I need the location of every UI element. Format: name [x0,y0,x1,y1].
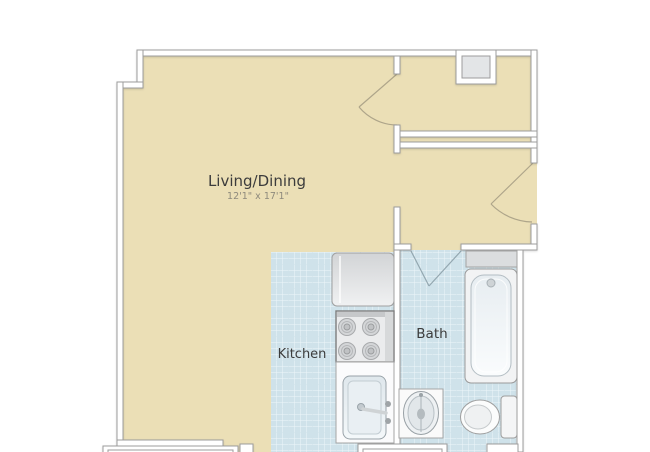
tub-deck [466,251,517,267]
stove [336,311,394,362]
kitchen-sink [336,362,394,443]
floor-plan-canvas: Living/Dining 12'1" x 17'1" Kitchen Bath [0,0,650,452]
wall-left [117,82,123,446]
wall-bottom-living [117,440,223,446]
wall-closet-stub-top [394,56,400,74]
wall-bath-right [517,250,523,452]
wall-bottom-bath-right [487,444,518,452]
wall-bath-top-right [461,244,537,250]
living-dining-dimensions: 12'1" x 17'1" [227,191,289,202]
kitchen-label: Kitchen [278,347,327,362]
living-dining-label: Living/Dining [208,172,306,190]
bath-label: Bath [416,326,447,342]
wall-closet-stub-mid [394,125,400,153]
wall-bath-top-left [394,244,411,250]
sink-drain [417,409,425,420]
refrigerator [332,253,394,306]
pedestal-sink [399,389,443,438]
utility-shaft [462,56,490,78]
bathtub [465,269,517,383]
faucet-knob [385,418,391,424]
wall-closet-divider-lower [397,142,537,148]
faucet-knob [385,401,391,407]
balcony-post [240,444,253,452]
wall-closet-divider-upper [397,131,537,137]
floor-plan: Living/Dining 12'1" x 17'1" Kitchen Bath [0,0,650,452]
tub-drain [487,279,495,287]
sink-faucet [419,393,423,397]
toilet-tank [501,396,517,438]
